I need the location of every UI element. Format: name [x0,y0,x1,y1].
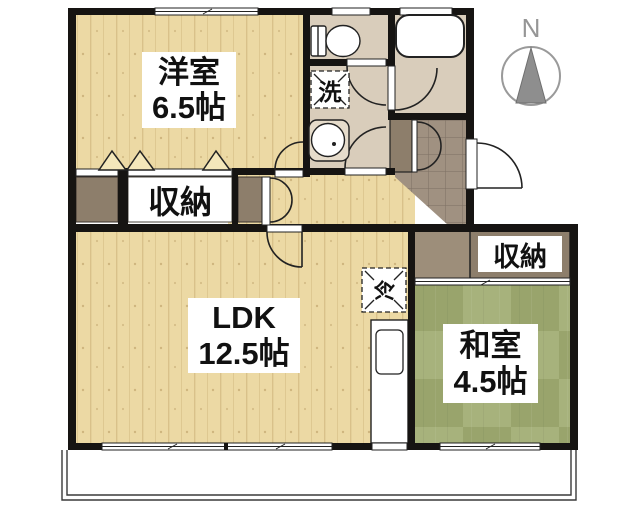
ldk-name: LDK [212,300,276,335]
wall-middle [68,224,578,232]
bathtub [396,15,464,57]
wall-bath-bottom [388,113,474,120]
window-toilet [332,8,370,15]
refrigerator-label-text: 冷 [369,280,399,301]
western-room-label: 洋室 6.5帖 [142,52,236,128]
japanese-room-size: 4.5帖 [453,364,527,399]
refrigerator-label: 冷 [362,268,406,312]
washbasin [309,120,349,161]
western-room-name: 洋室 [158,55,220,90]
toilet-door-opening [347,59,386,66]
japanese-room-label: 和室 4.5帖 [443,324,538,403]
japanese-room-name: 和室 [460,328,522,363]
sliding-door-japanese-closet [415,278,570,285]
washroom-door-opening [345,168,386,175]
kitchen-sink [376,330,403,374]
laundry-label: 洗 [311,71,349,108]
entry-door-arc [477,143,522,188]
window-ldk-south [102,443,332,450]
window-kitchen [372,443,407,450]
ldk-label: LDK 12.5帖 [188,298,300,373]
toilet-fixture [311,26,360,57]
entry-door-panel [466,139,477,189]
ldk-size: 12.5帖 [198,336,289,371]
hall-closet-block [238,177,262,222]
western-door-opening [275,170,303,177]
shoe-cabinet-door-panel [412,120,417,172]
hall-storage-label: 収納 [128,177,232,222]
wall-closet-divider-2 [232,168,238,230]
window-bath [400,8,452,15]
east-storage-label: 収納 [478,236,562,272]
bath-door-opening [388,66,395,110]
ldk-door-opening [267,225,302,232]
hall-closet-door-panel [262,177,270,225]
balcony [62,450,576,500]
window-japanese-south [440,443,540,450]
window-western-top [155,8,258,15]
wall-closet-divider-1 [118,168,128,230]
compass-north-label: N [514,13,548,43]
wall-japanese-left [408,225,415,450]
western-room-size: 6.5帖 [152,90,226,125]
wall-right-lower [570,225,578,450]
shoe-cabinet [390,118,412,172]
closet-left-block [76,177,118,222]
floor-plan: 洋室 6.5帖 LDK 12.5帖 和室 4.5帖 収納 収納 洗 冷 N [0,0,640,512]
closet-nook [415,232,470,279]
compass-icon [502,47,560,105]
